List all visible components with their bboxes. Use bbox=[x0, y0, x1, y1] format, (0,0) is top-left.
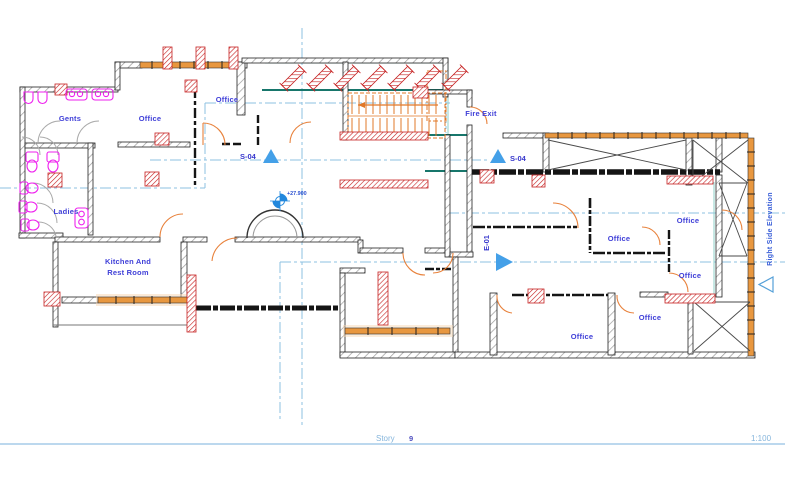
door-swing bbox=[212, 238, 237, 261]
wall bbox=[115, 62, 120, 90]
section-marker-label: S-04 bbox=[510, 154, 527, 163]
wall bbox=[20, 87, 25, 238]
room-label-office-left[interactable]: Office bbox=[139, 114, 161, 123]
wall bbox=[88, 143, 93, 235]
room-label-office-ne[interactable]: Office bbox=[677, 216, 699, 225]
room-label-office-top[interactable]: Office bbox=[216, 95, 238, 104]
elevation-marker-triangle bbox=[496, 253, 513, 271]
room-label-office-e[interactable]: Office bbox=[679, 271, 701, 280]
room-label-office-se[interactable]: Office bbox=[639, 313, 661, 322]
wall bbox=[716, 175, 722, 297]
red-column bbox=[163, 47, 172, 69]
red-column bbox=[55, 84, 67, 95]
window-band bbox=[748, 138, 754, 356]
toilet bbox=[26, 152, 38, 172]
floor-plan-canvas: Gents Office Office Ladies Kitchen And R… bbox=[0, 0, 785, 499]
red-column bbox=[528, 289, 544, 303]
right-side-elevation-label: Right Side Elevation bbox=[767, 192, 774, 266]
wall bbox=[503, 133, 545, 138]
stair-treads bbox=[352, 95, 436, 136]
red-beam-strip bbox=[378, 272, 388, 325]
basin bbox=[79, 219, 85, 225]
right-side-elevation-triangle bbox=[759, 277, 773, 292]
wall bbox=[688, 297, 693, 354]
wall bbox=[235, 237, 360, 242]
level-marker-value: +27.900 bbox=[287, 191, 307, 197]
window-band bbox=[545, 133, 748, 138]
red-column bbox=[155, 133, 169, 145]
wall bbox=[181, 242, 187, 298]
wall bbox=[543, 133, 549, 172]
wall bbox=[445, 135, 450, 257]
room-label-fire-exit[interactable]: Fire Exit bbox=[465, 109, 497, 118]
story-number[interactable]: 9 bbox=[409, 434, 413, 443]
diagonal-beam bbox=[388, 65, 415, 92]
wall bbox=[640, 292, 668, 297]
wall bbox=[237, 62, 245, 115]
elevation-marker-label: E-01 bbox=[482, 235, 491, 251]
wall bbox=[716, 138, 722, 172]
red-column bbox=[185, 80, 197, 92]
red-beam bbox=[665, 294, 715, 303]
level-marker[interactable]: +27.900 bbox=[270, 191, 307, 211]
room-label-kitchen-line1[interactable]: Kitchen And bbox=[105, 257, 151, 266]
wall bbox=[360, 248, 403, 253]
wall bbox=[53, 242, 58, 327]
section-marker-triangle bbox=[490, 149, 506, 163]
basin bbox=[79, 211, 85, 217]
red-beam bbox=[340, 132, 428, 140]
red-column bbox=[480, 170, 494, 183]
door-swing bbox=[403, 253, 425, 275]
section-marker-label: S-04 bbox=[240, 152, 257, 161]
wall bbox=[490, 293, 497, 355]
wall bbox=[183, 237, 207, 242]
red-column bbox=[196, 47, 205, 69]
toilet bbox=[47, 152, 59, 172]
wall bbox=[453, 257, 458, 357]
arch-opening[interactable] bbox=[247, 210, 303, 238]
room-label-kitchen-line2[interactable]: Rest Room bbox=[107, 268, 149, 277]
story-status-line: Story 9 1:100 bbox=[0, 434, 785, 444]
door-swing bbox=[617, 295, 634, 313]
room-label-office-center[interactable]: Office bbox=[608, 234, 630, 243]
scale-indicator[interactable]: 1:100 bbox=[751, 434, 772, 443]
room-label-office-s[interactable]: Office bbox=[571, 332, 593, 341]
window-band bbox=[98, 297, 188, 303]
wall bbox=[118, 142, 190, 147]
red-column bbox=[229, 47, 238, 69]
section-marker-s04-right[interactable]: S-04 bbox=[490, 149, 527, 163]
red-column bbox=[145, 172, 159, 186]
wall bbox=[608, 293, 615, 355]
section-marker-triangle bbox=[263, 149, 279, 163]
wall bbox=[55, 237, 160, 242]
red-column bbox=[44, 292, 60, 306]
section-marker-s04-left[interactable]: S-04 bbox=[240, 149, 279, 163]
diagonal-beam bbox=[307, 65, 334, 92]
wall bbox=[467, 125, 472, 257]
door-swing bbox=[497, 295, 512, 313]
red-column bbox=[413, 87, 428, 98]
window-band bbox=[345, 328, 450, 334]
floor-plan-drawing: Gents Office Office Ladies Kitchen And R… bbox=[0, 0, 785, 499]
door-swing bbox=[290, 122, 311, 143]
wall bbox=[62, 297, 98, 303]
wall bbox=[455, 352, 755, 358]
door-swing bbox=[553, 203, 578, 228]
elevation-marker-e01[interactable]: E-01 bbox=[482, 235, 513, 271]
diagonal-beam bbox=[361, 65, 388, 92]
door-swing bbox=[203, 123, 225, 145]
terrace-outline[interactable] bbox=[53, 303, 192, 325]
red-beam bbox=[340, 180, 428, 188]
room-label-ladies[interactable]: Ladies bbox=[54, 207, 79, 216]
red-beam bbox=[667, 176, 713, 184]
wall bbox=[340, 273, 345, 357]
wall bbox=[340, 268, 365, 273]
door-swing bbox=[160, 214, 183, 237]
story-label[interactable]: Story bbox=[376, 434, 395, 443]
red-beam-strip bbox=[187, 275, 196, 332]
wall bbox=[340, 352, 455, 358]
door-swing bbox=[642, 227, 660, 245]
wall bbox=[467, 90, 472, 107]
red-column bbox=[48, 173, 62, 187]
red-column bbox=[532, 175, 545, 187]
right-side-elevation-marker[interactable]: Right Side Elevation bbox=[759, 192, 774, 292]
stall-door-swing bbox=[77, 121, 99, 143]
urinal bbox=[38, 92, 47, 104]
room-label-gents[interactable]: Gents bbox=[59, 114, 81, 123]
